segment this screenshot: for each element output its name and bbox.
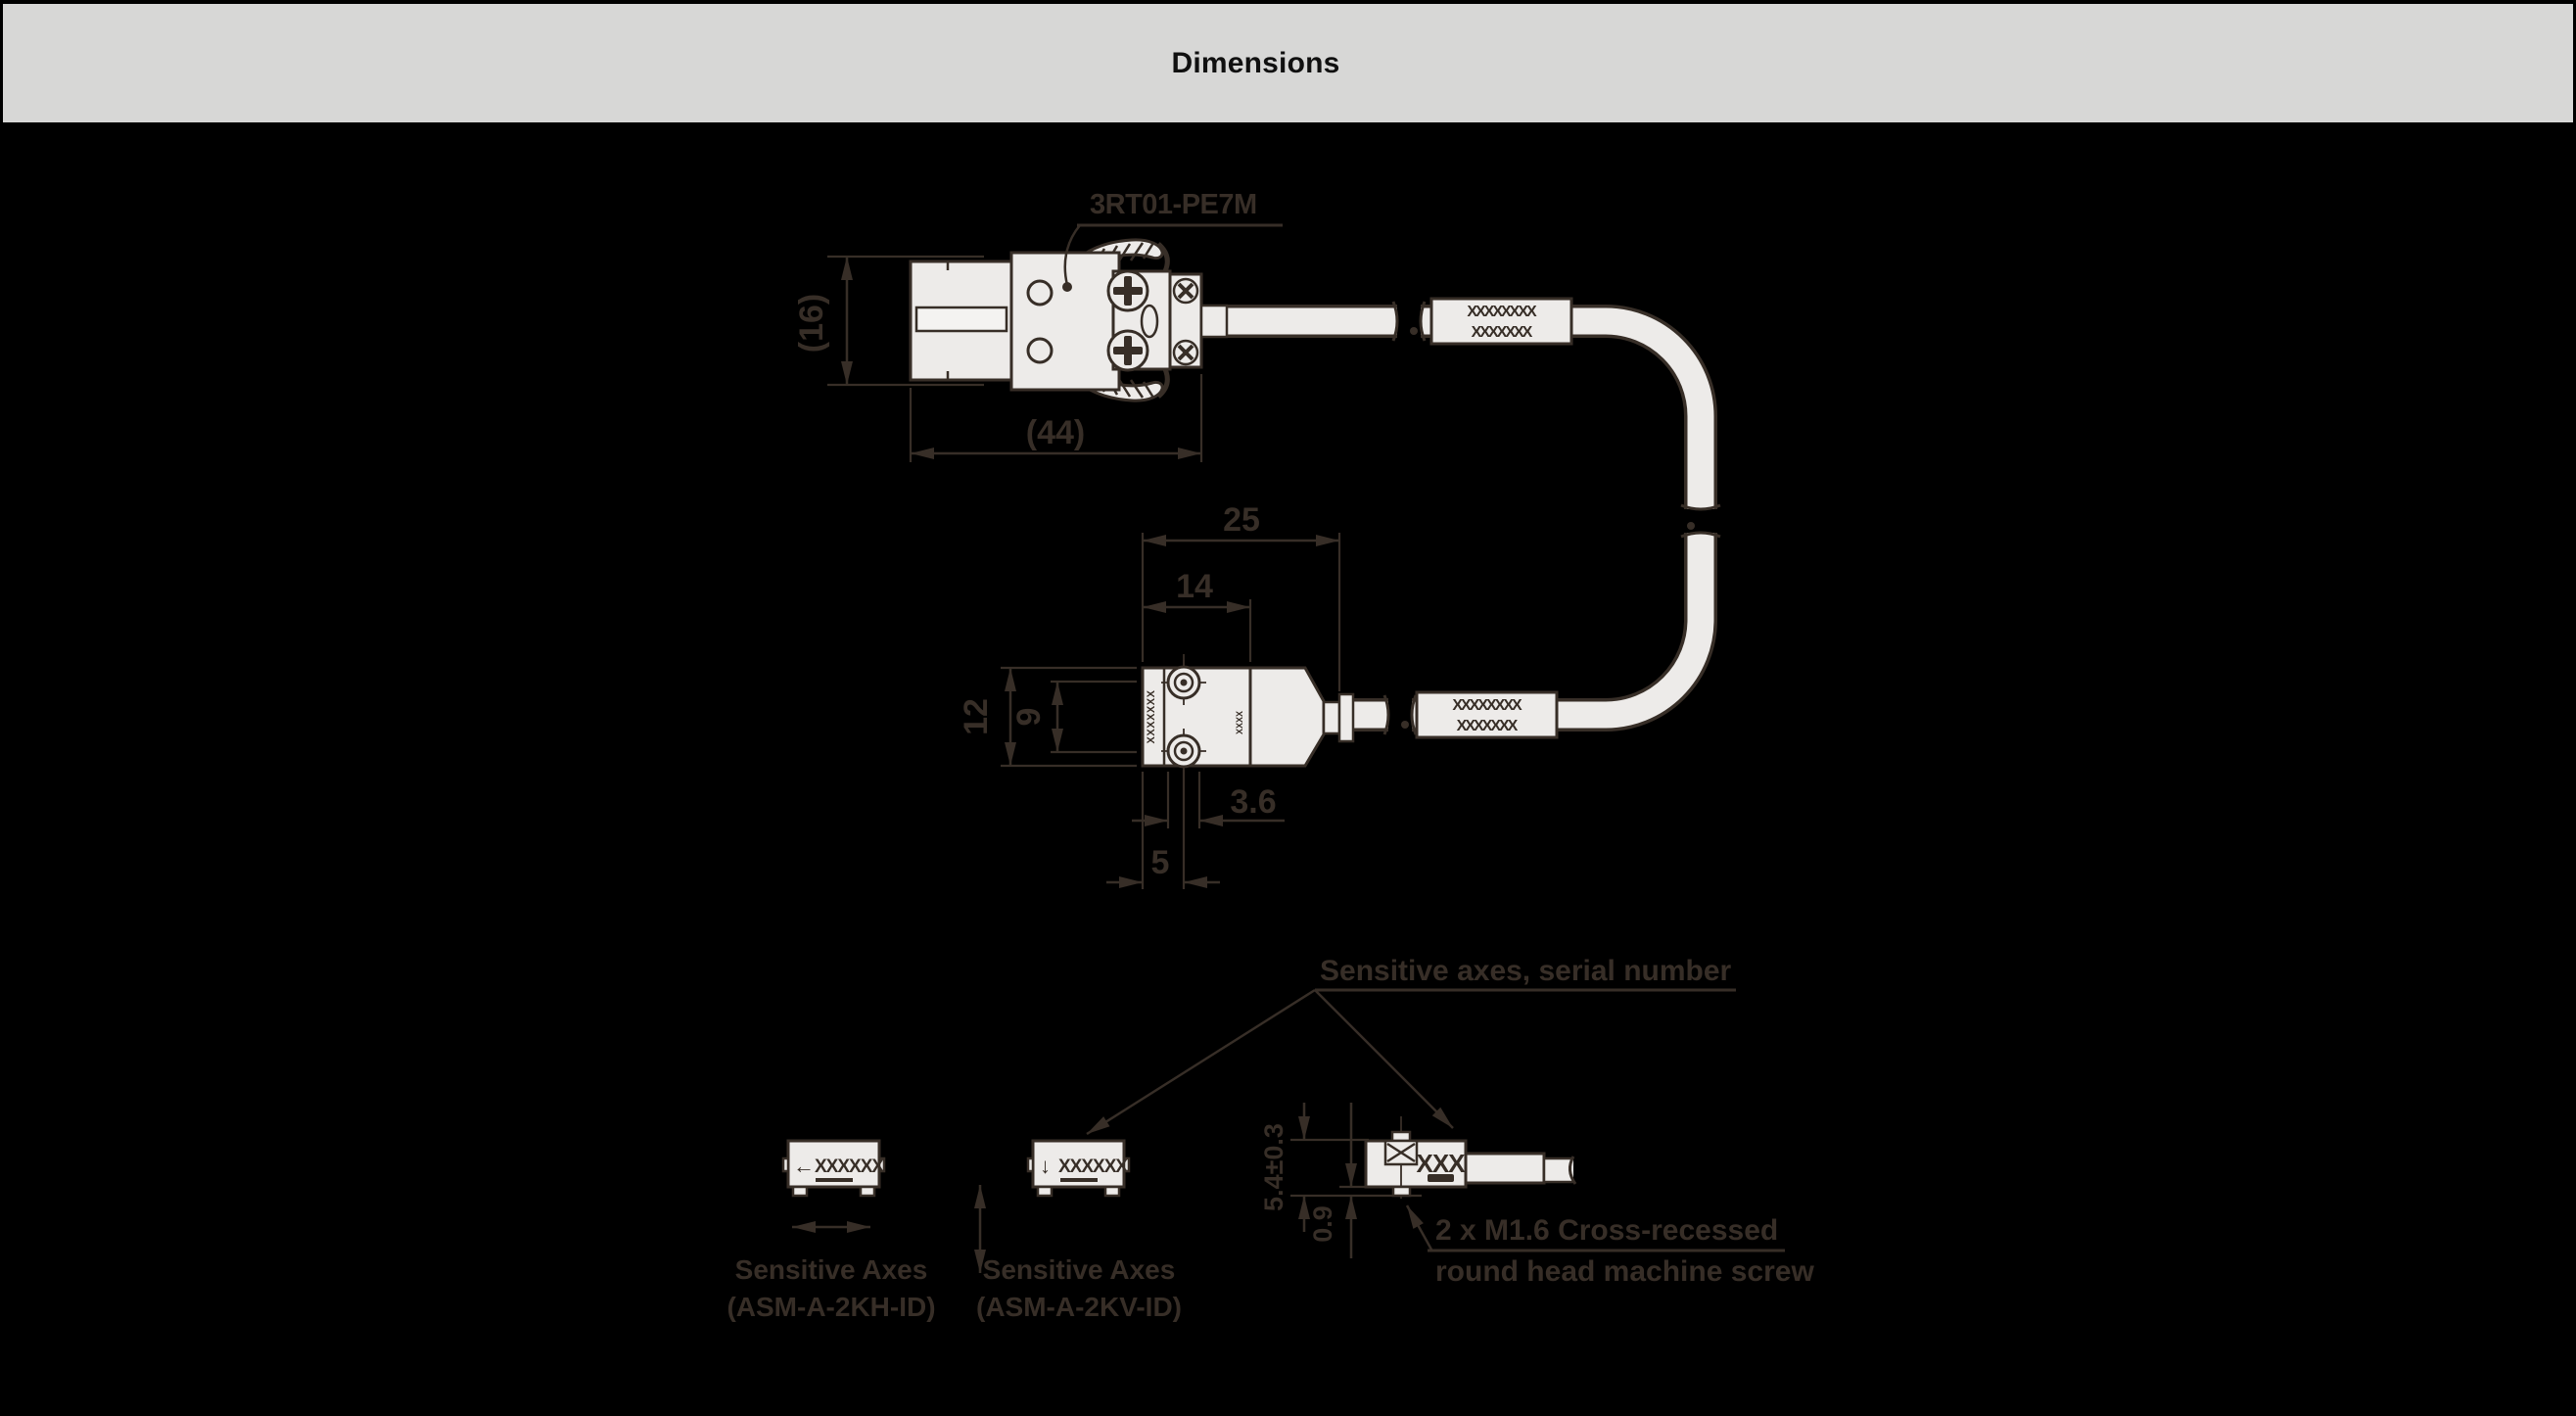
axis-caption-1: Sensitive Axes [735, 1254, 928, 1285]
sensor-edge-marking: XXXX [1235, 711, 1244, 734]
sleeve-marking: XXXXXXXX [1452, 697, 1522, 714]
sleeve-marking: XXXXXXX [1457, 718, 1519, 734]
phillips-screw-top [1108, 271, 1147, 310]
cap-screw-bottom [1174, 341, 1197, 364]
view-side: XXX [1366, 1116, 1587, 1199]
axis-view-marking: XXXXXX [1058, 1156, 1128, 1177]
serial-leader-right [1315, 990, 1453, 1128]
screw-note-leader [1407, 1205, 1431, 1250]
cable-sleeve-bottom: XXXXXXXX XXXXXXX [1417, 692, 1557, 737]
screw-note-line1: 2 x M1.6 Cross-recessed [1435, 1214, 1778, 1247]
cable-break-vertical [1678, 505, 1723, 537]
axis-view-marking: XXXXXX [815, 1156, 884, 1177]
cable-break-top [1393, 299, 1425, 344]
cable-outline [1227, 321, 1701, 715]
foot [793, 1187, 807, 1196]
dim-5-4: 5.4±0.3 [1259, 1123, 1288, 1211]
phillips-screw-bottom [1108, 331, 1147, 370]
dim-25: 25 [1223, 501, 1260, 539]
sensor-top-view: XXXXXXX XXXX [1143, 654, 1353, 774]
down-arrow-icon: ↓ [1040, 1154, 1051, 1178]
axis-caption-2: (ASM-A-2KH-ID) [726, 1292, 935, 1322]
dim-9: 9 [1010, 708, 1048, 727]
dim-sensor-25: 25 [1143, 501, 1339, 691]
sleeve-marking: XXXXXXXX [1467, 304, 1537, 320]
left-arrow-icon: ← [793, 1154, 815, 1178]
sensor-side-marking: XXXXXXX [1146, 689, 1157, 743]
dim-0-9: 0.9 [1308, 1205, 1337, 1243]
view-vertical-axes: ↓ XXXXXX Sensitive Axes (ASM-A-2KV-ID) [976, 1141, 1182, 1322]
dim-sensor-14: 14 [1143, 568, 1250, 662]
cable-sleeve-top: XXXXXXXX XXXXXXX [1431, 299, 1571, 344]
cable [1227, 321, 1701, 715]
cable-boot [1201, 306, 1227, 337]
screw-note-line2: round head machine screw [1435, 1255, 1814, 1288]
page: Dimensions [0, 0, 2576, 1416]
dim-14: 14 [1176, 568, 1213, 605]
sensor-taper [1250, 668, 1324, 766]
dim-5: 5 [1151, 844, 1170, 881]
foot [861, 1187, 874, 1196]
dim-sensor-9: 9 [1010, 682, 1137, 752]
cable-core [1227, 321, 1701, 715]
technical-drawing: 3RT01-PE7M (16) (44) XXXXXXXX XXXXXXX [0, 0, 2576, 1416]
foot [1038, 1187, 1052, 1196]
axis-caption-2: (ASM-A-2KV-ID) [976, 1292, 1182, 1322]
view-horizontal-axes: ← XXXXXX Sensitive Axes (ASM-A-2KH-ID) [726, 1141, 935, 1322]
sleeve-marking: XXXXXXX [1472, 324, 1533, 341]
serial-note-text: Sensitive axes, serial number [1320, 955, 1732, 987]
dim-sensor-5: 5 [1106, 772, 1220, 889]
annotation-serial: Sensitive axes, serial number [1087, 955, 1736, 1134]
axis-caption-1: Sensitive Axes [983, 1254, 1176, 1285]
connector-top-view [911, 240, 1227, 401]
mating-slot [916, 307, 1007, 331]
dim-44: (44) [1026, 414, 1085, 451]
screw-tip [1393, 1187, 1410, 1196]
serial-leader-left [1087, 990, 1315, 1134]
cable-break-bottom [1384, 692, 1416, 737]
cap-screw-top [1174, 279, 1197, 303]
connector-leader-dot [1062, 282, 1072, 292]
screw-head-top [1392, 1132, 1410, 1141]
dim-3-6: 3.6 [1230, 783, 1276, 821]
foot [1105, 1187, 1119, 1196]
dim-16: (16) [793, 294, 830, 353]
connector-label: 3RT01-PE7M [1090, 189, 1257, 220]
side-view-marking: XXX [1416, 1149, 1466, 1178]
sensor-ferrule [1339, 694, 1353, 741]
side-ferrule [1466, 1154, 1544, 1183]
sensor-neck [1324, 702, 1339, 733]
dim-side-0-9: 0.9 [1308, 1103, 1365, 1258]
dim-12: 12 [958, 698, 995, 735]
annotation-screw: 2 x M1.6 Cross-recessed round head machi… [1407, 1205, 1814, 1288]
